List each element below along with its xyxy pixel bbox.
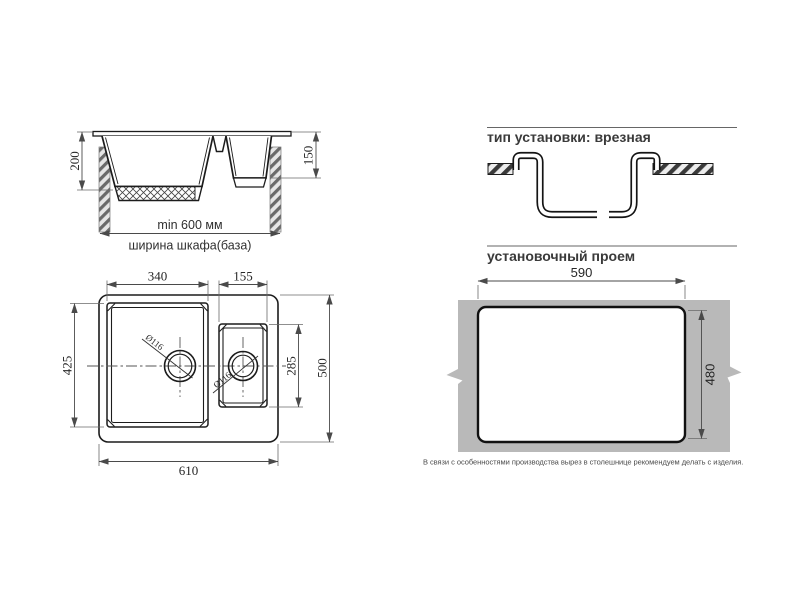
dim-cabinet-width-label: ширина шкафа(база) — [129, 239, 252, 253]
installation-opening-view: установочный проем 590 480 В связи с осо… — [423, 246, 743, 467]
cabinet-wall-right — [270, 147, 281, 232]
dim-cutout-width: 590 — [571, 265, 593, 280]
dim-overall-depth: 500 — [315, 358, 330, 378]
dim-main-bowl-width: 340 — [148, 269, 168, 284]
dim-small-bowl-width: 155 — [233, 269, 253, 284]
dim-cabinet-width-min: min 600 мм — [157, 218, 222, 232]
dim-cutout-height: 480 — [703, 364, 718, 386]
countertop-section-right — [653, 164, 713, 175]
bowl-divider — [213, 136, 226, 152]
dim-main-bowl-length: 425 — [60, 356, 75, 376]
countertop-section-left — [488, 164, 513, 175]
dim-small-bowl-length: 285 — [284, 356, 299, 376]
main-bowl-section — [102, 136, 213, 187]
production-note: В связи с особенностями производства выр… — [423, 458, 743, 467]
small-bowl-floor — [234, 178, 267, 187]
cutout-rect — [478, 307, 685, 442]
sink-rim-section — [93, 132, 291, 137]
sink-technical-drawing: 200 150 min 600 мм ширина шкафа(база) ти… — [0, 0, 800, 600]
dim-depth-small-bowl: 150 — [301, 146, 316, 166]
sink-profile-left-inner — [516, 156, 597, 215]
dim-overall-width: 610 — [179, 463, 199, 478]
dim-depth-main-bowl: 200 — [67, 151, 82, 171]
section-view: 200 150 min 600 мм ширина шкафа(база) — [67, 132, 321, 253]
sink-profile-right-inner — [609, 156, 657, 215]
main-bowl-drain-hatch — [115, 187, 195, 201]
installation-type-view: тип установки: врезная — [487, 128, 737, 215]
sink-outline-plan — [99, 295, 278, 442]
drawing-canvas: 200 150 min 600 мм ширина шкафа(база) ти… — [0, 0, 800, 600]
sink-profile-left-outer — [516, 156, 597, 215]
installation-opening-title: установочный проем — [487, 248, 635, 264]
installation-type-title: тип установки: врезная — [487, 129, 651, 145]
plan-view: Ø116 Ø116 340 155 425 285 500 610 — [60, 269, 335, 479]
